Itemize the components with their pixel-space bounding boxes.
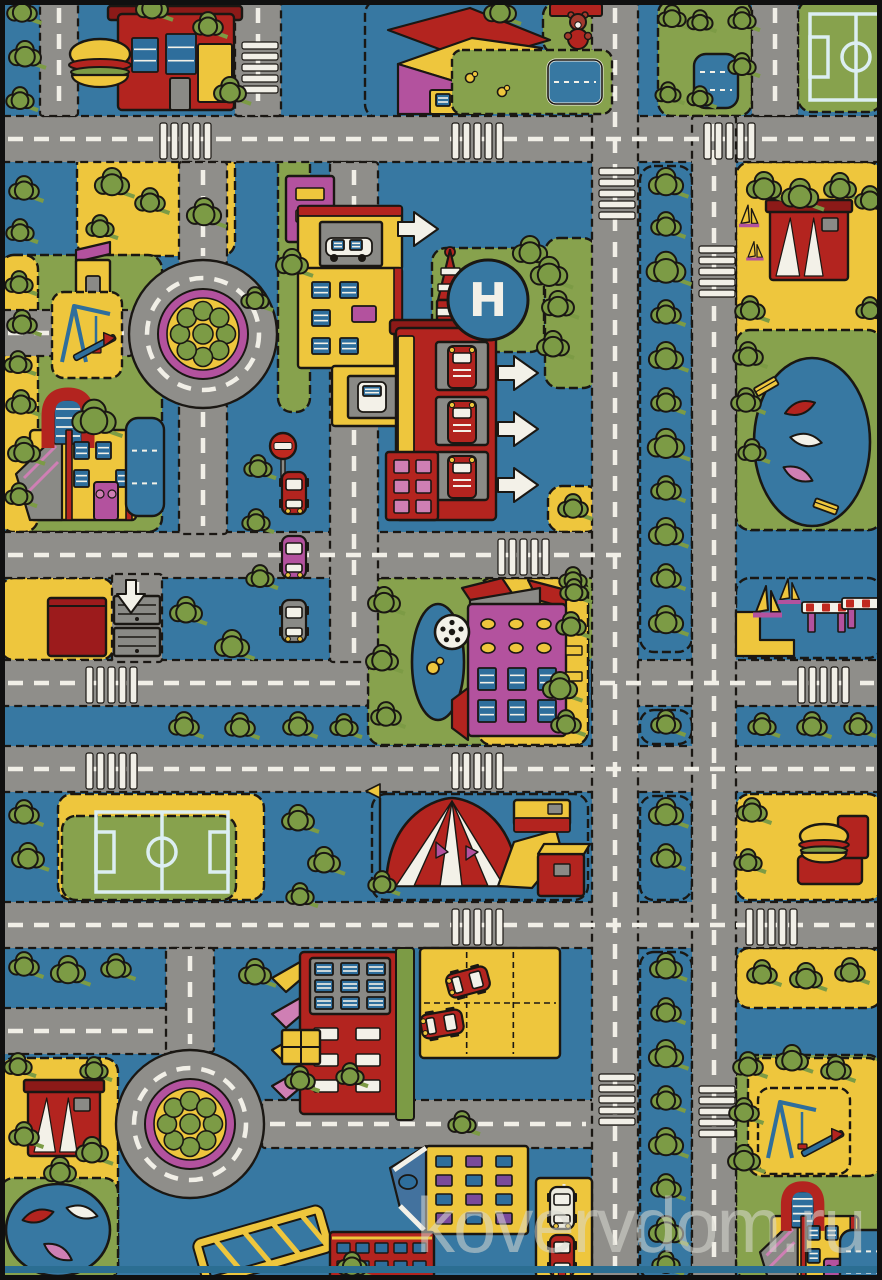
parked-car: [279, 472, 309, 514]
parked-car: [279, 600, 309, 642]
play-rug-photo: H kovervdom.ru: [0, 0, 882, 1280]
swimming-pool: [548, 60, 602, 104]
pond: [126, 418, 164, 516]
roundabout: [129, 260, 277, 408]
playground: [758, 1088, 850, 1174]
helipad-letter: H: [469, 273, 508, 327]
fire-station: [386, 320, 508, 520]
roundabout: [116, 1050, 264, 1198]
burger-stand: [798, 816, 868, 884]
play-rug-illustration: H: [0, 0, 882, 1280]
parking-lot: [419, 948, 560, 1058]
helipad: H: [448, 260, 528, 340]
striped-kiosk: [766, 200, 852, 280]
parking-lot: [536, 1178, 592, 1278]
lake: [6, 1184, 110, 1276]
apartment-building: [272, 948, 414, 1120]
shed: [48, 598, 106, 656]
parked-car: [279, 536, 309, 578]
playground: [52, 292, 122, 378]
